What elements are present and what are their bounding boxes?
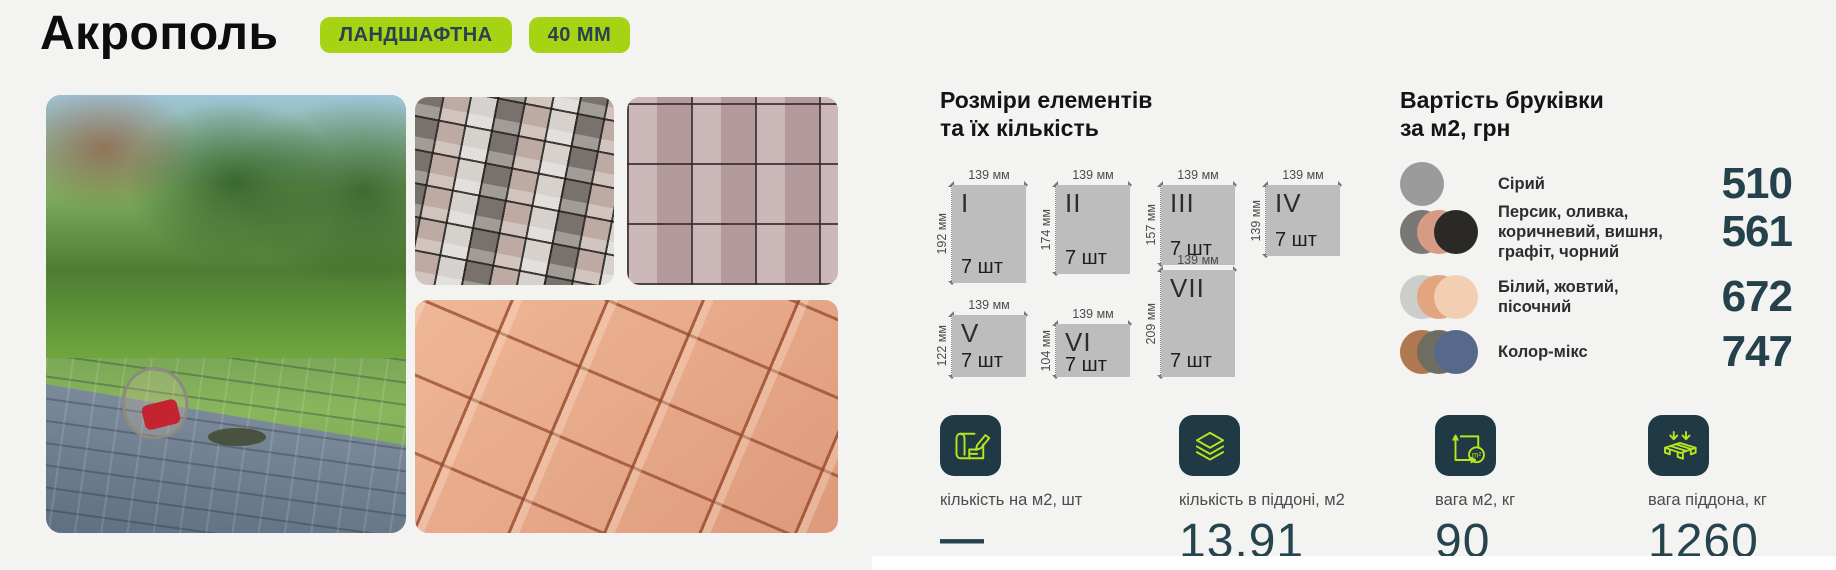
element-numeral: VII: [1170, 275, 1235, 301]
element-count: 7 шт: [961, 351, 1026, 371]
element-count: 7 шт: [1065, 248, 1130, 268]
photo-garden-patio: [46, 95, 406, 533]
dim-width: 139 мм: [952, 296, 1026, 316]
dim-width: 139 мм: [1056, 166, 1130, 186]
element-box: IV 7 шт: [1266, 185, 1340, 256]
bottom-divider: [872, 556, 1836, 570]
pricing-heading: Вартість бруківки за м2, грн: [1400, 86, 1604, 142]
dim-height: 174 мм: [1036, 185, 1056, 274]
stat-weight-m2: m² вага м2, кг 90: [1435, 415, 1515, 569]
price-value: 561: [1722, 207, 1792, 257]
color-swatch: [1434, 330, 1478, 374]
page-title: Акрополь: [40, 6, 278, 61]
color-swatch: [1434, 210, 1478, 254]
element-box: VII 7 шт: [1161, 270, 1235, 377]
price-value: 747: [1722, 327, 1792, 377]
stat-weight-pallet: вага піддона, кг 1260: [1648, 415, 1767, 569]
photo-texture-pink: [627, 97, 838, 285]
sizes-heading: Розміри елементів та їх кількість: [940, 86, 1152, 142]
price-row-light-mix: Білий, жовтий, пісочний 672: [1400, 269, 1792, 325]
color-swatch: [1400, 162, 1444, 206]
dim-height: 122 мм: [932, 315, 952, 377]
color-swatches: [1400, 274, 1498, 320]
color-names: Персик, оливка, коричневий, вишня, графі…: [1498, 202, 1722, 262]
pallet-weight-icon: [1648, 415, 1709, 476]
element-box: I 7 шт: [952, 185, 1026, 283]
area-weight-icon: m²: [1435, 415, 1496, 476]
svg-text:m²: m²: [1471, 450, 1481, 459]
dim-height: 139 мм: [1246, 185, 1266, 256]
element-count: 7 шт: [961, 257, 1026, 277]
garden-table: [208, 428, 266, 446]
dim-height: 104 мм: [1036, 324, 1056, 377]
stat-label: вага м2, кг: [1435, 491, 1515, 510]
color-swatches: [1400, 329, 1498, 375]
stat-label: вага піддона, кг: [1648, 491, 1767, 510]
stat-qty-per-m2: кількість на м2, шт —: [940, 415, 1082, 564]
element-count: 7 шт: [1170, 351, 1235, 371]
dim-width: 139 мм: [1056, 305, 1130, 325]
dim-height: 157 мм: [1141, 185, 1161, 265]
dim-width: 139 мм: [952, 166, 1026, 186]
price-row-dark-mix: Персик, оливка, коричневий, вишня, графі…: [1400, 199, 1792, 265]
layers-icon: [1179, 415, 1240, 476]
element-numeral: II: [1065, 190, 1130, 216]
stat-label: кількість на м2, шт: [940, 491, 1082, 510]
price-row-color-mix: Колор-мікс 747: [1400, 327, 1792, 377]
photo-texture-gray-mix: [415, 97, 614, 285]
element-numeral: V: [961, 320, 1026, 346]
element-numeral: I: [961, 190, 1026, 216]
badge-row: ЛАНДШАФТНА 40 ММ: [320, 17, 630, 53]
element-numeral: IV: [1275, 190, 1340, 216]
dim-width: 139 мм: [1161, 166, 1235, 186]
color-names: Сірий: [1498, 174, 1722, 194]
photo-texture-peach: [415, 300, 838, 533]
dim-width: 139 мм: [1161, 251, 1235, 271]
color-names: Колор-мікс: [1498, 342, 1722, 362]
product-card: Акрополь ЛАНДШАФТНА 40 ММ Розміри елемен…: [0, 0, 1836, 570]
blueprint-pencil-icon: [940, 415, 1001, 476]
element-box: II 7 шт: [1056, 185, 1130, 274]
stat-label: кількість в піддоні, м2: [1179, 491, 1345, 510]
stat-m2-per-pallet: кількість в піддоні, м2 13,91: [1179, 415, 1345, 569]
color-swatches: [1400, 209, 1498, 255]
dim-height: 192 мм: [932, 185, 952, 283]
element-count: 7 шт: [1065, 355, 1130, 375]
element-numeral: III: [1170, 190, 1235, 216]
element-count: 7 шт: [1275, 230, 1340, 250]
element-box: VI 7 шт: [1056, 324, 1130, 377]
element-box: V 7 шт: [952, 315, 1026, 377]
badge-thickness: 40 ММ: [529, 17, 631, 53]
price-value: 672: [1722, 272, 1792, 322]
color-swatch: [1434, 275, 1478, 319]
badge-category: ЛАНДШАФТНА: [320, 17, 512, 53]
color-names: Білий, жовтий, пісочний: [1498, 277, 1722, 317]
dim-width: 139 мм: [1266, 166, 1340, 186]
dim-height: 209 мм: [1141, 270, 1161, 377]
element-numeral: VI: [1065, 329, 1130, 355]
